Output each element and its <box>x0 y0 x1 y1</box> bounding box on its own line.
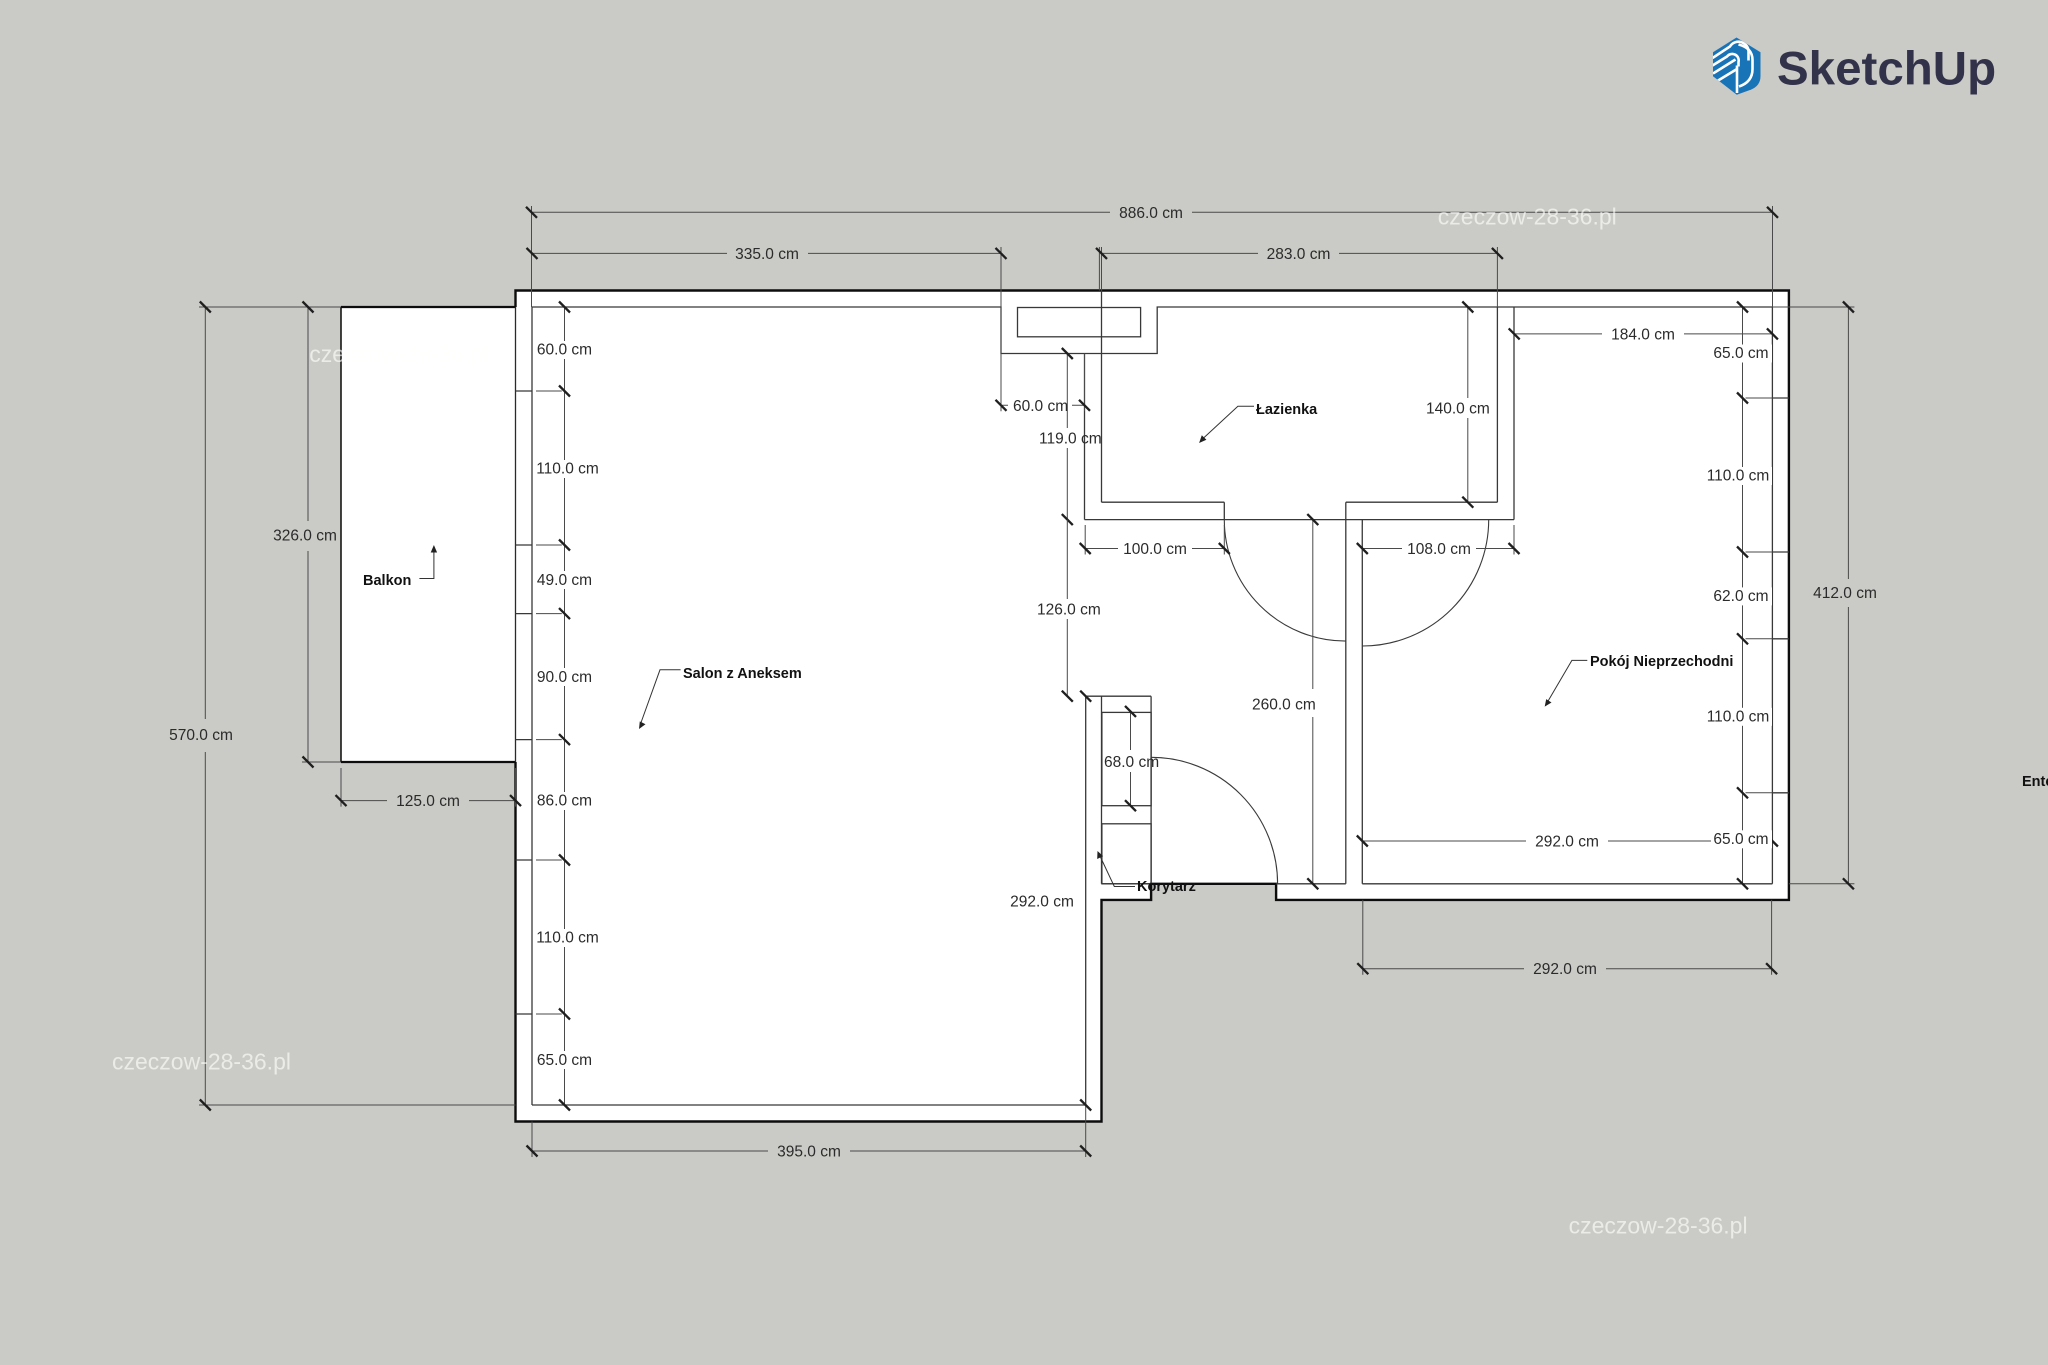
svg-text:65.0 cm: 65.0 cm <box>1713 831 1768 848</box>
svg-text:326.0 cm: 326.0 cm <box>273 528 337 545</box>
svg-text:100.0 cm: 100.0 cm <box>1123 541 1187 558</box>
svg-text:90.0 cm: 90.0 cm <box>537 669 592 686</box>
svg-text:czeczow-28-36.pl: czeczow-28-36.pl <box>1438 204 1617 230</box>
svg-text:65.0 cm: 65.0 cm <box>1713 345 1768 362</box>
svg-text:140.0 cm: 140.0 cm <box>1426 401 1490 418</box>
svg-text:Salon z Aneksem: Salon z Aneksem <box>683 666 802 682</box>
svg-text:czeczow-28-36.pl: czeczow-28-36.pl <box>1569 1213 1748 1239</box>
svg-text:Balkon: Balkon <box>363 573 411 589</box>
svg-text:110.0 cm: 110.0 cm <box>536 930 599 947</box>
svg-text:Korytarz: Korytarz <box>1137 879 1196 895</box>
svg-text:335.0 cm: 335.0 cm <box>735 246 799 263</box>
svg-text:110.0 cm: 110.0 cm <box>1707 468 1770 485</box>
svg-text:SketchUp: SketchUp <box>1777 43 1996 96</box>
svg-text:86.0 cm: 86.0 cm <box>537 792 592 809</box>
svg-text:62.0 cm: 62.0 cm <box>1713 588 1768 605</box>
svg-text:125.0 cm: 125.0 cm <box>396 793 460 810</box>
svg-text:570.0 cm: 570.0 cm <box>169 727 233 744</box>
svg-text:126.0 cm: 126.0 cm <box>1037 602 1101 619</box>
svg-text:65.0 cm: 65.0 cm <box>537 1052 592 1069</box>
svg-text:886.0 cm: 886.0 cm <box>1119 205 1183 222</box>
svg-text:Enter: Enter <box>2022 774 2048 790</box>
svg-text:60.0 cm: 60.0 cm <box>537 342 592 359</box>
svg-text:60.0 cm: 60.0 cm <box>1013 398 1068 415</box>
svg-text:czeczow-28-36.pl: czeczow-28-36.pl <box>309 341 488 367</box>
svg-text:108.0 cm: 108.0 cm <box>1407 541 1471 558</box>
svg-text:110.0 cm: 110.0 cm <box>536 461 599 478</box>
svg-text:184.0 cm: 184.0 cm <box>1611 326 1675 343</box>
svg-text:49.0 cm: 49.0 cm <box>537 572 592 589</box>
svg-text:czeczow-28-36.pl: czeczow-28-36.pl <box>112 1049 291 1075</box>
svg-text:260.0 cm: 260.0 cm <box>1252 697 1316 714</box>
svg-text:68.0 cm: 68.0 cm <box>1104 754 1159 771</box>
svg-text:292.0 cm: 292.0 cm <box>1533 961 1597 978</box>
svg-text:119.0 cm: 119.0 cm <box>1039 431 1102 448</box>
svg-text:412.0 cm: 412.0 cm <box>1813 585 1877 602</box>
svg-text:110.0 cm: 110.0 cm <box>1707 708 1770 725</box>
svg-text:292.0 cm: 292.0 cm <box>1535 834 1599 851</box>
svg-text:Pokój Nieprzechodni: Pokój Nieprzechodni <box>1590 654 1733 670</box>
svg-text:Łazienka: Łazienka <box>1256 402 1318 418</box>
svg-text:292.0 cm: 292.0 cm <box>1010 893 1074 910</box>
svg-text:283.0 cm: 283.0 cm <box>1267 246 1331 263</box>
svg-text:395.0 cm: 395.0 cm <box>777 1144 841 1161</box>
